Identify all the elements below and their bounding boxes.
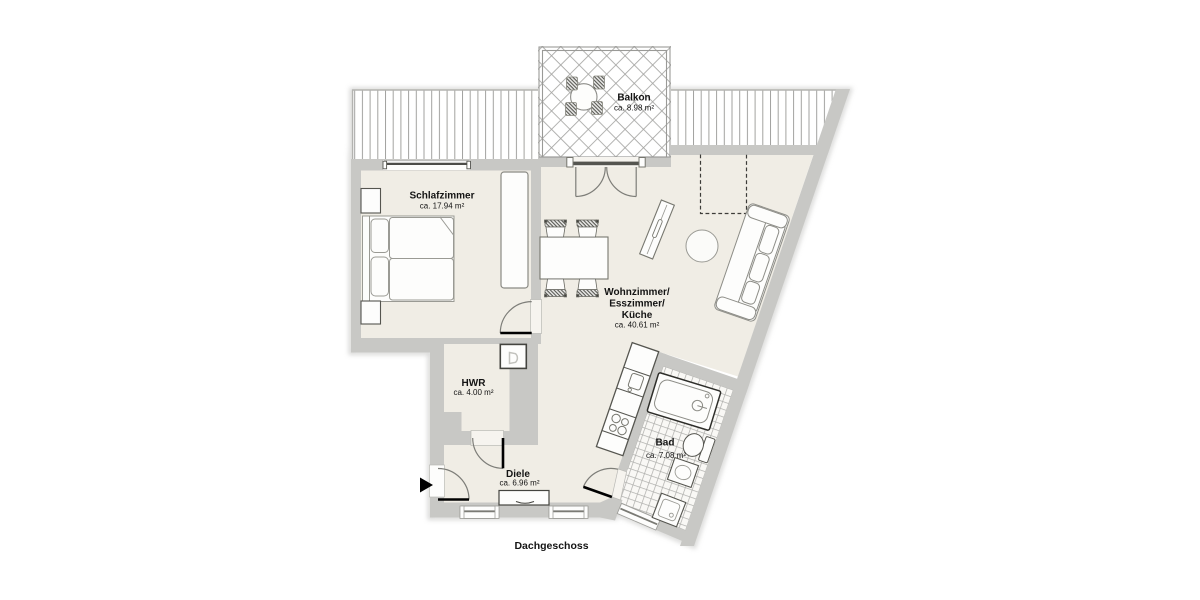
svg-text:Dachgeschoss: Dachgeschoss: [514, 540, 588, 552]
svg-text:Esszimmer/: Esszimmer/: [609, 299, 665, 310]
svg-text:Küche: Küche: [622, 310, 653, 321]
svg-text:ca. 17.94 m²: ca. 17.94 m²: [420, 202, 465, 211]
svg-text:ca. 7.08 m²: ca. 7.08 m²: [646, 451, 686, 460]
svg-text:Balkon: Balkon: [617, 93, 650, 104]
svg-text:Wohnzimmer/: Wohnzimmer/: [604, 287, 670, 298]
svg-text:ca. 6.96 m²: ca. 6.96 m²: [499, 479, 539, 488]
svg-text:ca. 4.00 m²: ca. 4.00 m²: [453, 388, 493, 397]
svg-text:ca. 8.98 m²: ca. 8.98 m²: [614, 104, 654, 113]
svg-text:Bad: Bad: [656, 438, 675, 449]
svg-text:Schlafzimmer: Schlafzimmer: [409, 191, 474, 202]
svg-text:ca. 40.61 m²: ca. 40.61 m²: [615, 321, 660, 330]
